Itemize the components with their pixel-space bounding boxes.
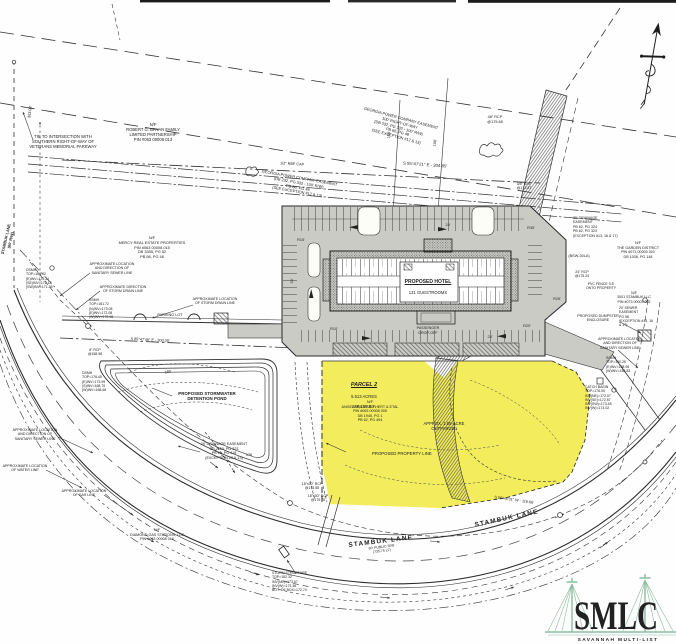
sanitary-sw-text: APPROXIMATE LOCATION AND DIRECTION OF SA… bbox=[5, 428, 65, 441]
radius-r20: R20' bbox=[523, 324, 531, 328]
ssmh2-label: SSMH TOP=190.25 (E)INV=158.95 (W)INV=158… bbox=[606, 356, 646, 376]
contour-180-label: 180 bbox=[164, 370, 171, 375]
radius-r25: R25' bbox=[553, 297, 561, 301]
rcp48-label: 48" RCP @175.68 bbox=[478, 115, 512, 127]
crf38-label: 3/8" CRF @173.87 bbox=[509, 182, 539, 194]
site-plan-page: PROPOSED HOTEL 131 GUESTROOMS bbox=[0, 0, 676, 644]
smlc-logo: SMLC SAVANNAH MULTI-LIST CORPORATION bbox=[545, 574, 676, 644]
storm-direction-nw-label: APPROXIMATE DIRECTION OF STORM DRAIN LIN… bbox=[92, 285, 154, 298]
sewer-east-text: 20' SEWER EASEMENT PG 58 (EXCEPTION #13,… bbox=[619, 306, 669, 327]
code-note-label: (BSW-30LA) bbox=[568, 254, 590, 258]
rcp8-text: 8" RCP @158.98 bbox=[81, 348, 109, 357]
owner-hert-label: N/F ANGELA RICHARD HERT & ETAL PIN #063 … bbox=[332, 400, 408, 426]
storm-structure-text: STORM STRUCTURE TOP=182.32 INV(NE)=173.6… bbox=[272, 571, 328, 592]
rcp18x30b-label: 18"x30" RCP @175.78 bbox=[298, 494, 338, 505]
drainage-west-text: 20' DRAINAGE EASEMENT DB 2150, PG 323 PB… bbox=[192, 442, 256, 460]
dsmh2-text: DSMH TOP=176.45 (E)INV=173.99 (S)INV=168… bbox=[82, 371, 126, 392]
drainage-east-label: 30' DRAINAGE EASEMENT PB 62, PG 324 PB 6… bbox=[573, 216, 635, 244]
drainage-west-label: 20' DRAINAGE EASEMENT DB 2150, PG 323 PB… bbox=[192, 442, 256, 464]
dropoff-text: PASSENGER DROP-OFF bbox=[410, 326, 446, 335]
gp-easement-1-text: GEORGIA POWER COMPANY EASEMENT 100' RIGH… bbox=[352, 105, 445, 151]
rbf-cap-label: 1/2" RBF CAP bbox=[280, 161, 305, 166]
drainage-east-text: 30' DRAINAGE EASEMENT PB 62, PG 324 PB 6… bbox=[573, 216, 635, 238]
rcp18x30a-label: 18"x30" RCP @175.58 bbox=[292, 482, 332, 493]
water-sw-label: APPROXIMATE LOCATION OF WATER LINE bbox=[1, 464, 49, 477]
sanitary-nw-text: APPROXIMATE LOCATION AND DIRECTION OF SA… bbox=[82, 262, 142, 275]
hotel-building: PROPOSED HOTEL 131 GUESTROOMS bbox=[323, 239, 518, 324]
dsmh1-label: DSMH TOP=180.92 (E)INV=175.21 (SE)INV=17… bbox=[26, 268, 72, 296]
gp-easement-2-text: GEORGIA POWER COMPANY EASEMENT (DB 232, … bbox=[252, 168, 344, 202]
parcel-2-acres: 5.513 ACRES bbox=[332, 394, 396, 399]
stambuk-vertical-label: STAMBUK LANE (60' R/W) bbox=[0, 213, 23, 267]
sanitary-sw-label: APPROXIMATE LOCATION AND DIRECTION OF SA… bbox=[5, 428, 65, 446]
tie-note-label: TIE TO INTERSECTION WITH SOUTHERN RIGHT-… bbox=[23, 134, 103, 154]
owner-garden-text: N/F THE GARDEN DISTRICT PIN #073 00003 0… bbox=[604, 241, 672, 259]
gp-easement-1-label: GEORGIA POWER COMPANY EASEMENT 100' RIGH… bbox=[351, 105, 445, 155]
dim-24b: 24' bbox=[488, 335, 493, 339]
dim-34: 34' bbox=[290, 278, 294, 283]
catch-basin-label: CATCH BASIN TOP=176.00 INV(NE)=172.07 IN… bbox=[585, 385, 631, 417]
rcp24-label: 24" RCP @175.24 bbox=[567, 270, 597, 281]
ssmh1-text: SSMH TOP=181.72 (N)INV=173.08 (E)INV=172… bbox=[89, 298, 133, 319]
road-name-sw: STAMBUK LANE 60' PUBLIC R/W (735.75 LF) bbox=[348, 534, 415, 561]
owner-diamond-label: N/F DIAMOND GAS STATIONS, LLC PIN #063 0… bbox=[119, 528, 195, 546]
parking-stalls-row bbox=[283, 243, 297, 329]
sanitary-nw-label: APPROXIMATE LOCATION AND DIRECTION OF SA… bbox=[82, 262, 142, 280]
owner-diamond-text: N/F DIAMOND GAS STATIONS, LLC PIN #063 0… bbox=[119, 528, 195, 542]
landscape-hatch-strips bbox=[333, 343, 519, 356]
rcp8-label: 8" RCP @158.98 bbox=[81, 348, 109, 359]
parcel-2-label: PARCEL 2 5.513 ACRES 240,157 S.F. bbox=[332, 377, 396, 397]
bearing-south-label: S 56°46'31" W - 116.66' bbox=[494, 495, 534, 505]
stambuk-vertical-text: STAMBUK LANE (60' R/W) bbox=[0, 213, 19, 266]
rcp18x30b-text: 18"x30" RCP @175.78 bbox=[298, 494, 338, 503]
radius-r35: R35' bbox=[527, 226, 535, 230]
outparcel-text: APPROX. 1.55-ACRE OUTPARCEL bbox=[417, 421, 471, 431]
west-distance-label: 363.08' bbox=[27, 105, 33, 118]
radius-r15: R15' bbox=[297, 238, 305, 242]
gp-easement-2-label: GEORGIA POWER COMPANY EASEMENT (DB 232, … bbox=[251, 168, 344, 207]
catch-basin-text: CATCH BASIN TOP=176.00 INV(NE)=172.07 IN… bbox=[585, 385, 631, 411]
logo-line1-text: SAVANNAH MULTI-LIST bbox=[578, 637, 659, 643]
storm-structures-south bbox=[279, 495, 340, 574]
hotel-name: PROPOSED HOTEL bbox=[394, 279, 462, 285]
storm-structure-label: STORM STRUCTURE TOP=182.32 INV(NE)=173.6… bbox=[272, 571, 328, 597]
rcp48-text: 48" RCP @175.68 bbox=[478, 115, 512, 124]
dumpster-label: PROPOSED DUMPSTER ENCLOSURE bbox=[574, 314, 622, 327]
storm-direction-nw-text: APPROXIMATE DIRECTION OF STORM DRAIN LIN… bbox=[92, 285, 154, 294]
hotel-label: PROPOSED HOTEL 131 GUESTROOMS bbox=[394, 274, 462, 290]
dsmh1-text: DSMH TOP=180.92 (E)INV=175.21 (SE)INV=17… bbox=[26, 268, 72, 289]
storm-location-n-text: APPROXIMATE LOCATION OF STORM DRAIN LINE bbox=[185, 297, 245, 306]
hotel-rooms: 131 GUESTROOMS bbox=[394, 290, 462, 295]
property-line-label: PROPOSED PROPERTY LINE bbox=[372, 451, 432, 456]
parking-lot-label: PARKING LOT bbox=[157, 313, 183, 317]
pond-label: PROPOSED STORMWATER DETENTION POND bbox=[166, 391, 248, 405]
sanitary-e-text: APPROXIMATE LOCATION AND DIRECTION OF SA… bbox=[591, 337, 649, 350]
pond-label-text: PROPOSED STORMWATER DETENTION POND bbox=[166, 391, 248, 402]
owner-bryan-text: N/F ROBERT G. BRYAN FAMILY LIMITED PARTN… bbox=[111, 122, 195, 143]
parcel-2-title: PARCEL 2 bbox=[332, 382, 396, 389]
owner-mercy-label: N/F MERCY REAL ESTATE PROPERTIES PIN #06… bbox=[112, 236, 192, 264]
crf38-text: 3/8" CRF @173.87 bbox=[509, 182, 539, 191]
gas-sw-text: APPROXIMATE LOCATION OF GAS LINE bbox=[60, 489, 108, 498]
logo-acronym-text: SMLC bbox=[574, 593, 658, 638]
rcp24-text: 24" RCP @175.24 bbox=[567, 270, 597, 279]
tie-note-text: TIE TO INTERSECTION WITH SOUTHERN RIGHT-… bbox=[23, 134, 103, 149]
radius-r10: R10' bbox=[330, 327, 338, 331]
owner-stambuk-llc-label: N/F 3001 STAMBUK LLC PIN #073 00003 002 bbox=[602, 291, 666, 307]
bearing-north-label: S 85°47'21" E - 304.85' bbox=[403, 160, 448, 168]
north-arrow-icon bbox=[631, 20, 671, 111]
dim-24a: 24' bbox=[446, 223, 451, 227]
owner-mercy-text: N/F MERCY REAL ESTATE PROPERTIES PIN #06… bbox=[112, 236, 192, 260]
pvc-fence-text: PVC FENCE 0.5' ONTO PROPERTY bbox=[577, 282, 625, 291]
dumpster-text: PROPOSED DUMPSTER ENCLOSURE bbox=[574, 314, 622, 323]
storm-location-n-label: APPROXIMATE LOCATION OF STORM DRAIN LINE bbox=[185, 297, 245, 310]
sheet-edge-marks bbox=[140, 0, 676, 3]
ssmh2-text: SSMH TOP=190.25 (E)INV=158.95 (W)INV=158… bbox=[606, 356, 646, 373]
outparcel-label: APPROX. 1.55-ACRE OUTPARCEL bbox=[417, 421, 471, 435]
sewer-east-label: 20' SEWER EASEMENT PG 58 (EXCEPTION #13,… bbox=[619, 306, 669, 330]
owner-stambuk-llc-text: N/F 3001 STAMBUK LLC PIN #073 00003 002 bbox=[602, 291, 666, 304]
ssmh1-label: SSMH TOP=181.72 (N)INV=173.08 (E)INV=172… bbox=[89, 298, 133, 324]
tree-symbols bbox=[246, 143, 503, 177]
owner-bryan-label: N/F ROBERT G. BRYAN FAMILY LIMITED PARTN… bbox=[111, 122, 195, 146]
site-plan-drawing: PROPOSED HOTEL 131 GUESTROOMS bbox=[0, 0, 676, 644]
road-name-se: STAMBUK LANE bbox=[474, 508, 539, 528]
owner-garden-label: N/F THE GARDEN DISTRICT PIN #073 00003 0… bbox=[604, 241, 672, 265]
owner-hert-text: N/F ANGELA RICHARD HERT & ETAL PIN #063 … bbox=[332, 400, 408, 423]
dim-100-a: 100' bbox=[387, 131, 392, 139]
rcp18x30a-text: 18"x30" RCP @175.58 bbox=[292, 482, 332, 491]
parking-stalls-row bbox=[528, 243, 542, 301]
gas-sw-label: APPROXIMATE LOCATION OF GAS LINE bbox=[60, 489, 108, 502]
dsmh2-label: DSMH TOP=176.45 (E)INV=173.99 (S)INV=168… bbox=[82, 371, 126, 395]
dropoff-label: PASSENGER DROP-OFF bbox=[410, 326, 446, 339]
sanitary-e-label: APPROXIMATE LOCATION AND DIRECTION OF SA… bbox=[591, 337, 649, 355]
dim-100-b: 100' bbox=[433, 139, 438, 147]
water-sw-text: APPROXIMATE LOCATION OF WATER LINE bbox=[1, 464, 49, 473]
